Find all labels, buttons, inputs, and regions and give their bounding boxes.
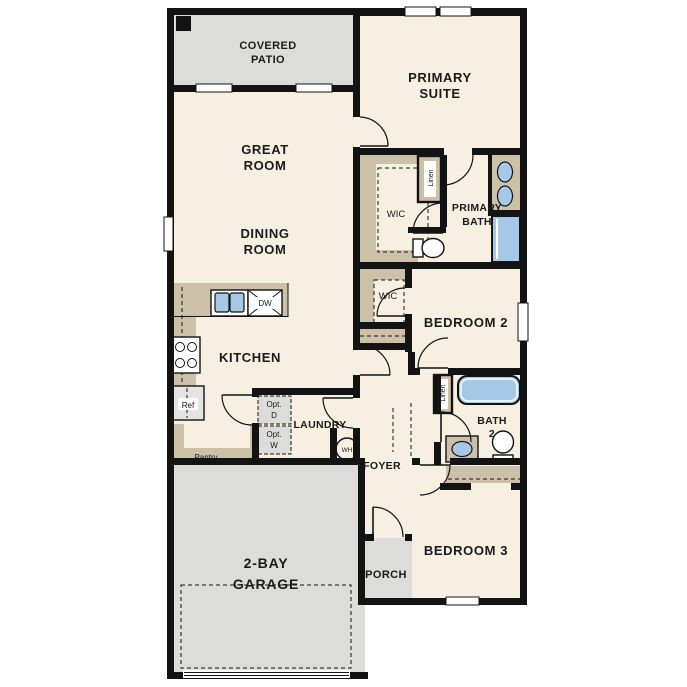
wic-shelf-band-left [360,150,376,265]
floor-plan-drawing: COVERED PATIO GREAT ROOM DINING ROOM PRI… [0,0,687,687]
toilet-bowl-primary [422,239,444,258]
bedroom3-closet-fill [446,466,524,483]
dishwasher-label: DW [258,299,272,308]
dining-room-label-line1: DINING [240,226,289,241]
pantry: Pantry [167,424,252,462]
opt-washer-label-line1: Opt. [266,430,281,439]
great-room-label-line2: ROOM [244,158,287,173]
opt-dryer-label-line2: D [271,411,277,420]
garage-label-line1: 2-BAY [244,555,289,571]
kitchen-sink-basin-2 [230,293,244,312]
dining-room: DINING ROOM [240,226,289,257]
great-room-window-1 [196,84,232,92]
bath2-label-line1: BATH [477,415,507,427]
foyer-label: FOYER [363,460,401,472]
bedroom3-window [446,597,479,605]
bedroom3-label: BEDROOM 3 [424,543,508,558]
bathtub [458,376,520,404]
bedroom2-window [518,303,528,341]
dining-room-window [164,217,173,251]
range [172,337,200,373]
dining-room-label-line2: ROOM [244,242,287,257]
wic-primary-label: WIC [387,209,406,220]
kitchen-label: KITCHEN [219,350,281,365]
bedroom2-label: BEDROOM 2 [424,315,508,330]
linen-bath2-label: Linen [440,384,447,401]
kitchen-sink-basin-1 [215,293,229,312]
primary-bath-label-line2: BATH [462,216,492,228]
water-heater-label: WH [342,447,353,454]
covered-patio-label-line1: COVERED [239,40,296,52]
wic2-shelf-band-top [360,268,412,280]
primary-suite-label-line2: SUITE [419,86,460,101]
linen-primary-label: Linen [428,169,435,186]
toilet-bowl-bath2 [493,431,514,453]
primary-suite-window-1 [405,7,436,16]
wic-shelf-band-bottom [360,250,418,263]
great-room-label-line1: GREAT [241,142,289,157]
base-fills [0,0,687,687]
covered-patio-label-line2: PATIO [251,54,285,66]
floor-plan-page: COVERED PATIO GREAT ROOM DINING ROOM PRI… [0,0,687,687]
great-room-window-2 [296,84,332,92]
opt-dryer-label-line1: Opt. [266,400,281,409]
primary-suite-window-2 [440,7,471,16]
hall-closet [360,329,405,343]
porch-label: PORCH [365,569,407,581]
opt-washer-label-line2: W [270,441,278,450]
bedroom-2: BEDROOM 2 [424,315,508,330]
garage-door [183,670,350,678]
primary-suite-label-line1: PRIMARY [408,70,472,85]
vanity-sink-1 [498,162,513,182]
patio-column [176,16,191,31]
bath2-sink [452,442,472,457]
refrigerator-label: Ref [182,401,195,410]
porch: PORCH [365,569,407,581]
pantry-inner [184,424,250,448]
great-room: GREAT ROOM [241,142,289,173]
garage-label-line2: GARAGE [233,576,299,592]
